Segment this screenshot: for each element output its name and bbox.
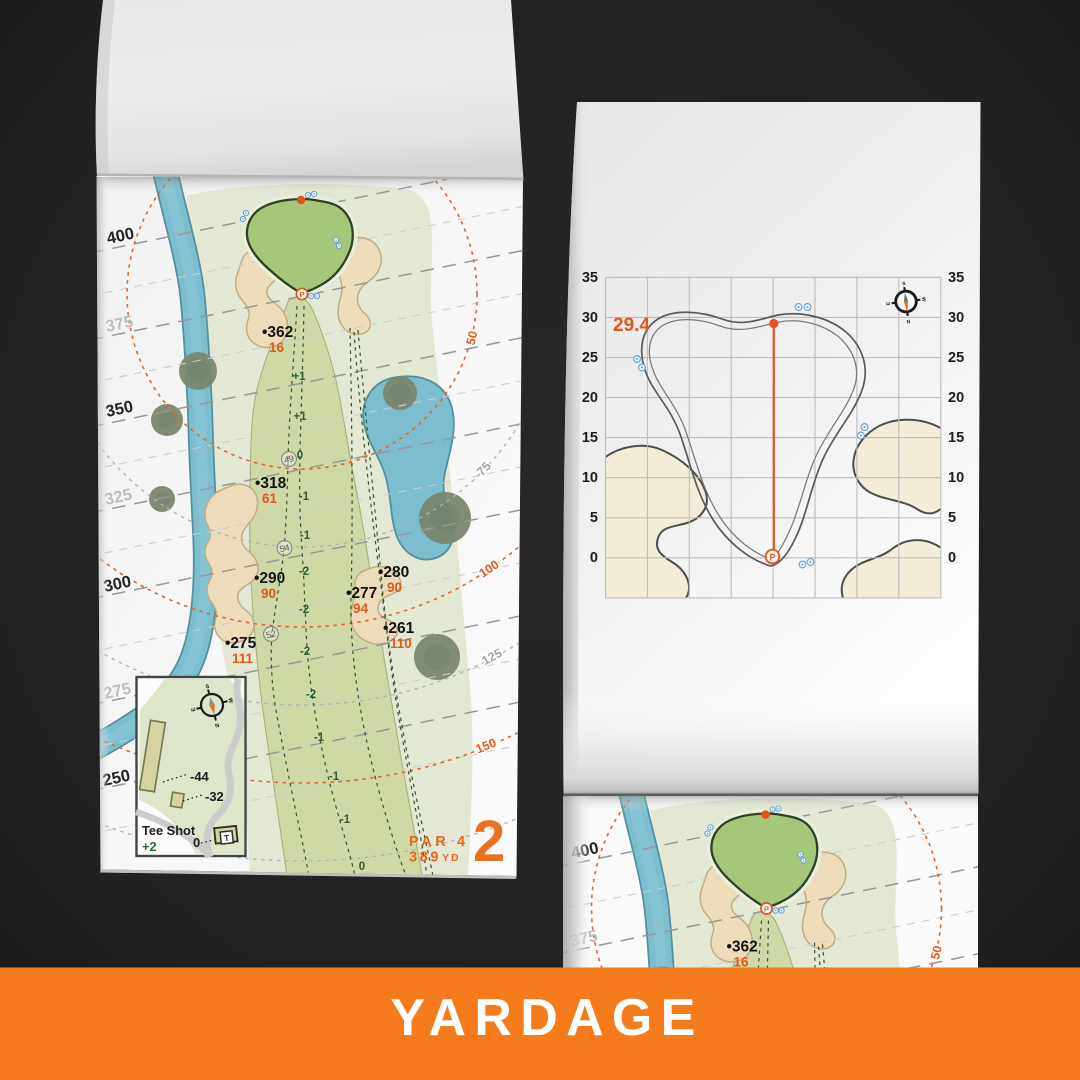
- svg-text:25: 25: [948, 350, 964, 366]
- svg-text:30: 30: [948, 310, 964, 326]
- svg-text:30: 30: [582, 310, 598, 326]
- svg-text:20: 20: [582, 390, 598, 406]
- svg-text:15: 15: [948, 430, 964, 446]
- svg-text:0: 0: [948, 550, 956, 566]
- svg-text:15: 15: [582, 430, 598, 446]
- svg-text:YARDAGE: YARDAGE: [390, 989, 703, 1047]
- svg-text:35: 35: [582, 270, 598, 286]
- svg-text:10: 10: [582, 470, 598, 486]
- svg-text:0: 0: [590, 550, 598, 566]
- svg-text:25: 25: [582, 350, 598, 366]
- svg-text:P: P: [769, 552, 775, 562]
- svg-text:35: 35: [948, 270, 964, 286]
- svg-text:20: 20: [948, 390, 964, 406]
- svg-text:10: 10: [948, 470, 964, 486]
- svg-text:29.4: 29.4: [613, 315, 650, 336]
- svg-text:5: 5: [590, 510, 598, 526]
- svg-text:5: 5: [948, 510, 956, 526]
